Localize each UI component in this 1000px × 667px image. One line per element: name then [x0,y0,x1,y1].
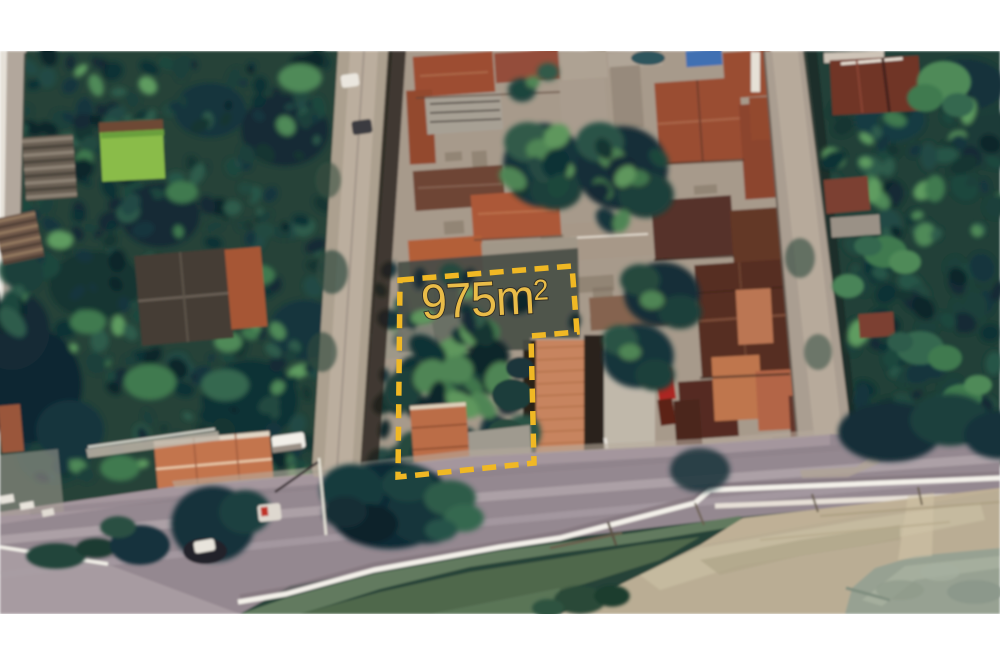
svg-text:975m2: 975m2 [420,269,550,330]
